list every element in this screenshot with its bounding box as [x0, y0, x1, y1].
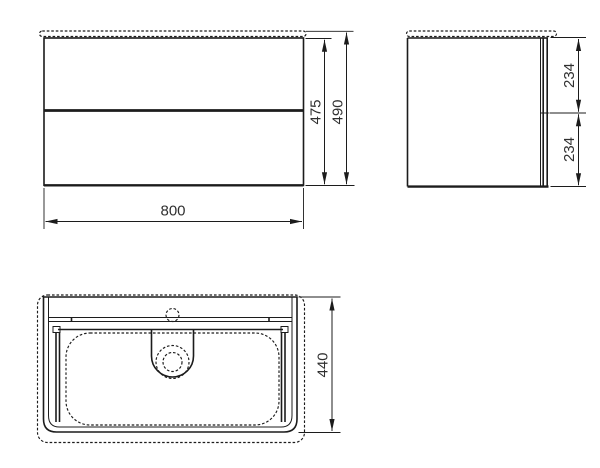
dim-label-width: 800: [160, 203, 185, 220]
side-view: 234 234: [407, 31, 587, 187]
top-view: 440: [38, 295, 341, 443]
overflow-recess-outline: [152, 330, 194, 378]
dim-label-carcass-height: 475: [307, 99, 324, 124]
countertop-edge-dashed-front: [40, 31, 307, 37]
countertop-edge-dashed-side: [407, 31, 557, 37]
washbasin-inner-edge: [49, 297, 293, 427]
dim-label-drawer-bottom: 234: [561, 137, 578, 162]
drain-inner-dashed-circle: [163, 353, 182, 372]
dim-label-drawer-top: 234: [561, 63, 578, 88]
bowl-outline-dashed: [66, 333, 279, 425]
technical-drawing-canvas: 800 475 490 234 234: [0, 0, 600, 468]
front-view: 800 475 490: [40, 31, 355, 229]
dimension-drawing: 800 475 490 234 234: [0, 0, 600, 468]
dim-label-depth: 440: [314, 352, 331, 377]
dim-label-total-height: 490: [329, 99, 346, 124]
tap-hole-dashed-circle: [166, 309, 179, 322]
